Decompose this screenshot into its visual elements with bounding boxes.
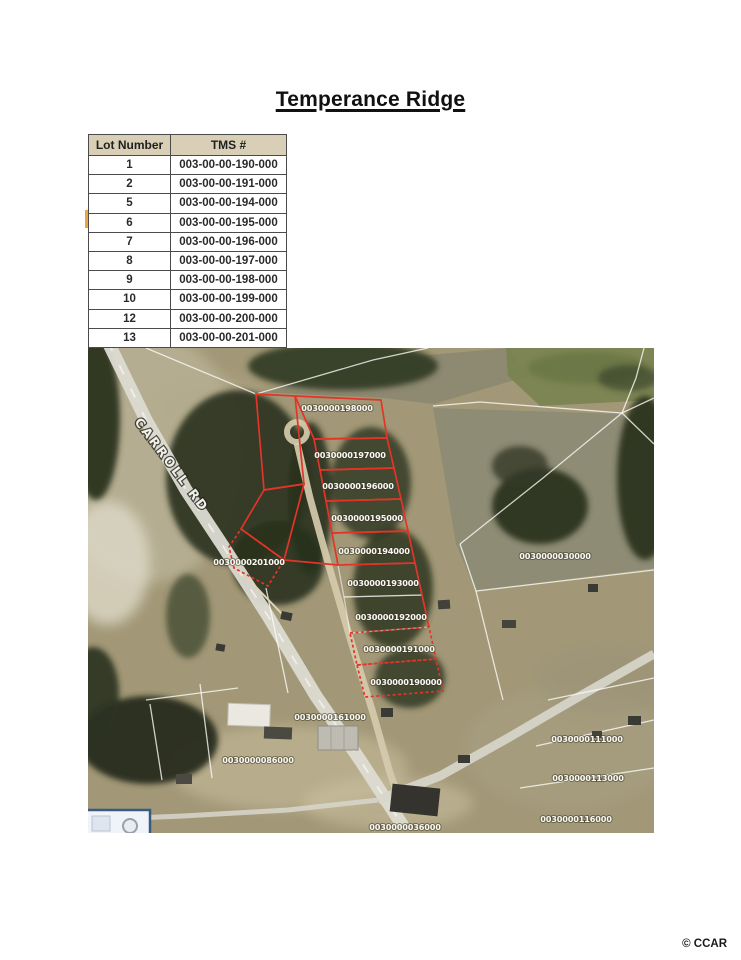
page-title: Temperance Ridge <box>0 88 741 112</box>
parcel-label-086: 0030000086000 <box>222 755 294 765</box>
lot-cell: 12 <box>89 309 171 328</box>
parcel-label-192: 0030000192000 <box>355 612 427 622</box>
tms-cell: 003-00-00-195-000 <box>171 213 287 232</box>
ccar-credit: © CCAR <box>682 938 727 950</box>
lot-cell: 10 <box>89 290 171 309</box>
table-row: 6003-00-00-195-000 <box>89 213 287 232</box>
table-row: 5003-00-00-194-000 <box>89 194 287 213</box>
table-row: 9003-00-00-198-000 <box>89 271 287 290</box>
lot-table: Lot Number TMS # 1003-00-00-190-000 2003… <box>88 134 287 348</box>
parcel-label-191: 0030000191000 <box>363 644 435 654</box>
parcel-label-111: 0030000111000 <box>551 734 623 744</box>
tms-cell: 003-00-00-198-000 <box>171 271 287 290</box>
tms-cell: 003-00-00-199-000 <box>171 290 287 309</box>
lot-cell: 13 <box>89 328 171 347</box>
parcel-label-030: 0030000030000 <box>519 551 591 561</box>
table-row: 13003-00-00-201-000 <box>89 328 287 347</box>
table-row: 1003-00-00-190-000 <box>89 156 287 175</box>
lot-cell: 6 <box>89 213 171 232</box>
lot-cell: 7 <box>89 232 171 251</box>
lot-cell: 9 <box>89 271 171 290</box>
tms-cell: 003-00-00-194-000 <box>171 194 287 213</box>
parcel-label-194: 0030000194000 <box>338 546 410 556</box>
tms-cell: 003-00-00-191-000 <box>171 175 287 194</box>
lot-cell: 5 <box>89 194 171 213</box>
listing-flyer-page: Temperance Ridge Lot Number TMS # 1003-0… <box>0 0 741 960</box>
lot-cell: 2 <box>89 175 171 194</box>
table-row: 2003-00-00-191-000 <box>89 175 287 194</box>
parcel-label-116: 0030000116000 <box>540 814 612 824</box>
tms-cell: 003-00-00-196-000 <box>171 232 287 251</box>
table-row: 7003-00-00-196-000 <box>89 232 287 251</box>
parcel-label-036: 0030000036000 <box>369 822 441 832</box>
parcel-label-113: 0030000113000 <box>552 773 624 783</box>
parcel-label-190: 0030000190000 <box>370 677 442 687</box>
lot-cell: 1 <box>89 156 171 175</box>
tms-cell: 003-00-00-200-000 <box>171 309 287 328</box>
map-toolbar-fragment <box>88 810 150 833</box>
tms-cell: 003-00-00-190-000 <box>171 156 287 175</box>
tms-cell: 003-00-00-201-000 <box>171 328 287 347</box>
parcel-label-198: 0030000198000 <box>301 403 373 413</box>
aerial-map: 0030000198000 0030000197000 003000019600… <box>88 348 654 833</box>
table-row: 8003-00-00-197-000 <box>89 252 287 271</box>
parcel-label-197: 0030000197000 <box>314 450 386 460</box>
parcel-label-193: 0030000193000 <box>347 578 419 588</box>
lot-cell: 8 <box>89 252 171 271</box>
parcel-label-196: 0030000196000 <box>322 481 394 491</box>
tms-header: TMS # <box>171 135 287 156</box>
tms-cell: 003-00-00-197-000 <box>171 252 287 271</box>
table-header-row: Lot Number TMS # <box>89 135 287 156</box>
table-row: 10003-00-00-199-000 <box>89 290 287 309</box>
parcel-label-201: 0030000201000 <box>213 557 285 567</box>
lot-number-header: Lot Number <box>89 135 171 156</box>
parcel-label-195: 0030000195000 <box>331 513 403 523</box>
parcel-label-161: 0030000161000 <box>294 712 366 722</box>
magnifier-icon <box>123 819 137 833</box>
table-row: 12003-00-00-200-000 <box>89 309 287 328</box>
